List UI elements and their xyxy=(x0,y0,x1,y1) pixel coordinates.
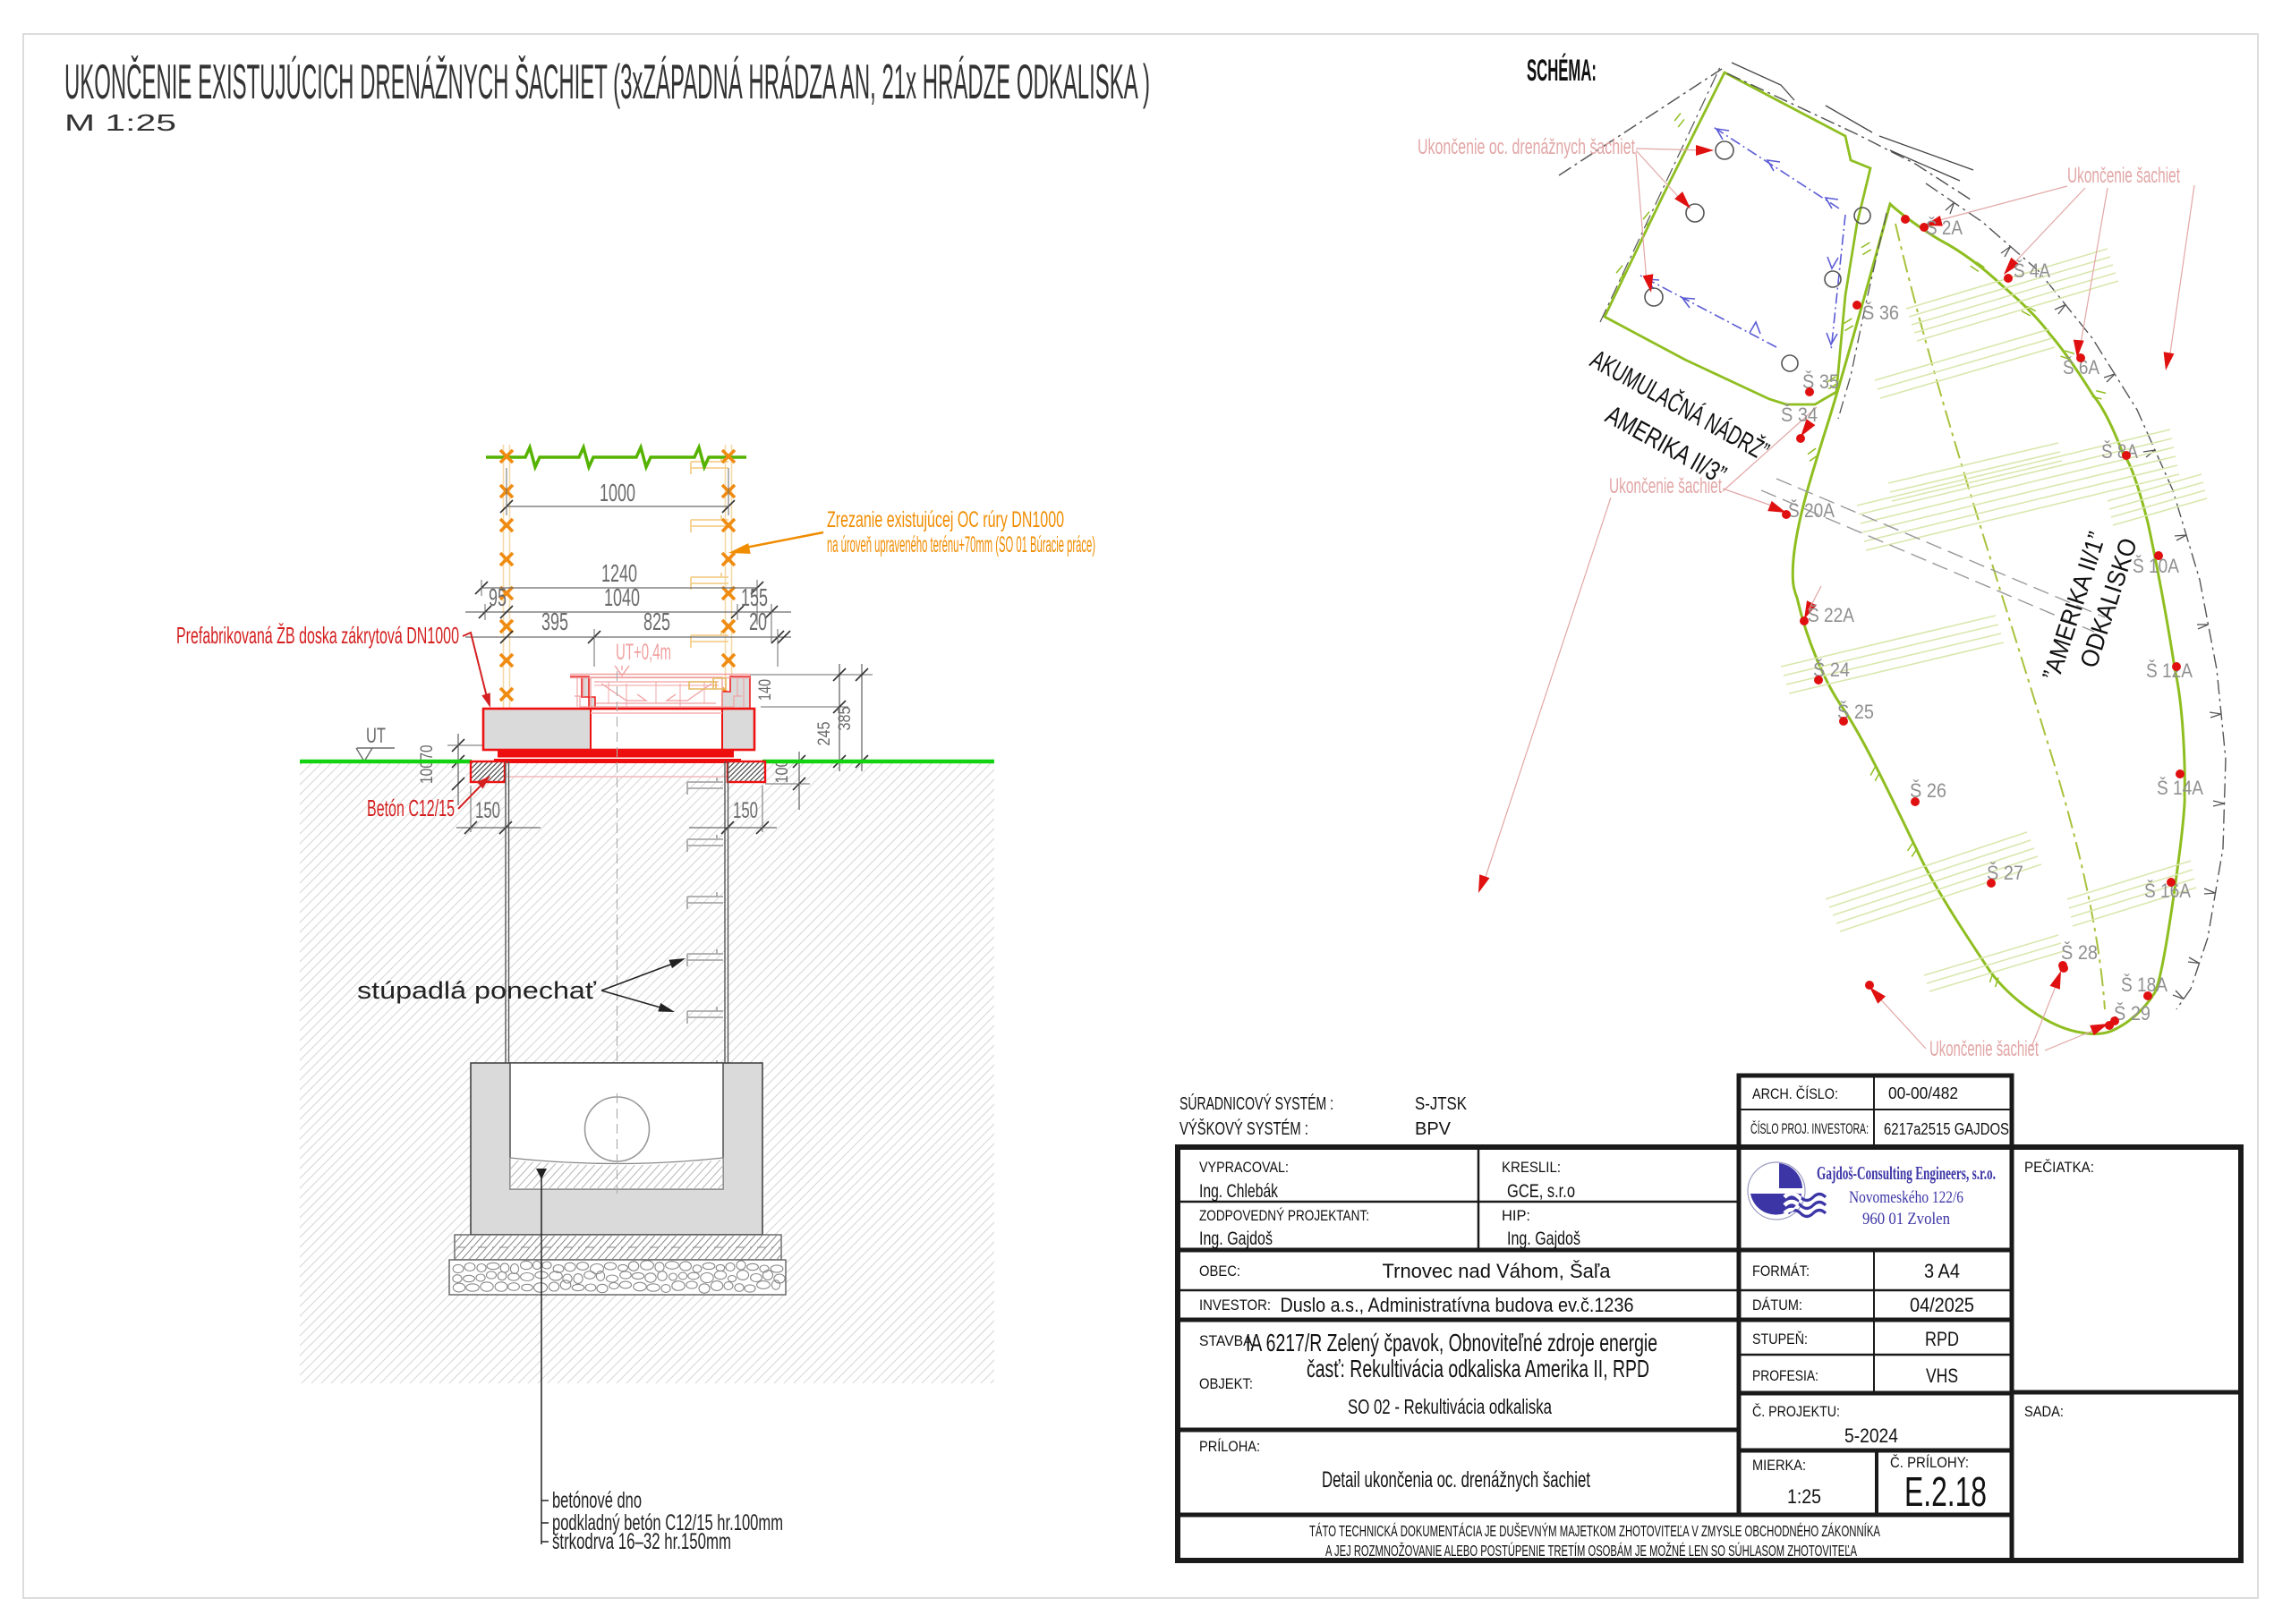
svg-text:E.2.18: E.2.18 xyxy=(1904,1468,1987,1515)
svg-text:DÁTUM:: DÁTUM: xyxy=(1752,1297,1802,1314)
svg-text:STUPEŇ:: STUPEŇ: xyxy=(1752,1331,1808,1348)
svg-text:Novomeského 122/6: Novomeského 122/6 xyxy=(1849,1188,1963,1207)
svg-text:VYPRACOVAL:: VYPRACOVAL: xyxy=(1199,1159,1289,1176)
svg-text:BPV: BPV xyxy=(1415,1119,1452,1139)
svg-text:Trnovec nad Váhom, Šaľa: Trnovec nad Váhom, Šaľa xyxy=(1383,1260,1612,1282)
svg-text:385: 385 xyxy=(836,707,855,731)
svg-text:Š 8A: Š 8A xyxy=(2101,440,2138,463)
svg-text:Š 28: Š 28 xyxy=(2061,941,2098,964)
svg-text:VHS: VHS xyxy=(1926,1365,1958,1387)
svg-text:HIP:: HIP: xyxy=(1502,1207,1530,1224)
svg-text:3 A4: 3 A4 xyxy=(1924,1260,1960,1282)
svg-text:1040: 1040 xyxy=(604,583,640,611)
svg-text:960 01 Zvolen: 960 01 Zvolen xyxy=(1862,1210,1950,1229)
svg-text:Š 2A: Š 2A xyxy=(1926,217,1963,239)
svg-text:TÁTO TECHNICKÁ DOKUMENTÁCIA JE: TÁTO TECHNICKÁ DOKUMENTÁCIA JE DUŠEVNÝM … xyxy=(1309,1521,1880,1540)
svg-text:70: 70 xyxy=(418,745,437,761)
svg-text:245: 245 xyxy=(815,722,834,746)
svg-text:IA 6217/R Zelený čpavok, Obnov: IA 6217/R Zelený čpavok, Obnoviteľné zdr… xyxy=(1246,1329,1657,1356)
svg-text:Betón C12/15: Betón C12/15 xyxy=(367,795,455,821)
svg-text:Š 22A: Š 22A xyxy=(1808,604,1854,626)
svg-text:PROFESIA:: PROFESIA: xyxy=(1752,1367,1818,1384)
svg-text:Detail ukončenia oc. drenážnyc: Detail ukončenia oc. drenážnych šachiet xyxy=(1322,1467,1590,1492)
svg-text:Š 18A: Š 18A xyxy=(2121,974,2168,996)
svg-text:395: 395 xyxy=(541,608,568,635)
svg-text:PRÍLOHA:: PRÍLOHA: xyxy=(1199,1438,1260,1455)
svg-text:Š 29: Š 29 xyxy=(2114,1002,2150,1025)
svg-text:GCE, s.r.o: GCE, s.r.o xyxy=(1507,1181,1575,1202)
svg-text:Š 14A: Š 14A xyxy=(2157,777,2203,799)
svg-text:95: 95 xyxy=(489,583,507,611)
svg-text:Ukončenie šachiet: Ukončenie šachiet xyxy=(2067,164,2180,188)
svg-text:00-00/482: 00-00/482 xyxy=(1888,1084,1958,1102)
svg-text:FORMÁT:: FORMÁT: xyxy=(1752,1263,1810,1280)
svg-text:Ing. Gajdoš: Ing. Gajdoš xyxy=(1199,1229,1273,1249)
svg-text:SO 02 - Rekultivácia odkaliska: SO 02 - Rekultivácia odkaliska xyxy=(1348,1395,1552,1418)
svg-text:štrkodrva 16–32 hr.150mm: štrkodrva 16–32 hr.150mm xyxy=(552,1529,731,1554)
svg-text:MIERKA:: MIERKA: xyxy=(1752,1457,1806,1474)
svg-text:INVESTOR:: INVESTOR: xyxy=(1199,1297,1271,1314)
svg-text:6217a2515 GAJDOS: 6217a2515 GAJDOS xyxy=(1884,1120,2009,1138)
svg-text:A JEJ ROZMNOŽOVANIE ALEBO POST: A JEJ ROZMNOŽOVANIE ALEBO POSTÚPENIE TRE… xyxy=(1325,1541,1857,1560)
svg-text:PEČIATKA:: PEČIATKA: xyxy=(2024,1159,2094,1176)
svg-text:Ing. Gajdoš: Ing. Gajdoš xyxy=(1507,1229,1580,1249)
svg-text:na úroveň upraveného terénu+70: na úroveň upraveného terénu+70mm (SO 01 … xyxy=(827,532,1095,557)
svg-text:5-2024: 5-2024 xyxy=(1844,1424,1898,1447)
svg-text:stúpadlá ponechať: stúpadlá ponechať xyxy=(357,977,597,1004)
svg-text:100: 100 xyxy=(418,761,437,784)
svg-text:M 1:25: M 1:25 xyxy=(64,109,176,136)
svg-text:SADA:: SADA: xyxy=(2024,1403,2064,1420)
svg-text:Š 12A: Š 12A xyxy=(2146,659,2193,682)
svg-text:Ing. Chlebák: Ing. Chlebák xyxy=(1199,1181,1278,1202)
svg-text:S-JTSK: S-JTSK xyxy=(1415,1094,1468,1114)
svg-text:Č. PROJEKTU:: Č. PROJEKTU: xyxy=(1752,1403,1840,1420)
svg-text:OBJEKT:: OBJEKT: xyxy=(1199,1375,1253,1392)
svg-text:UT+0,4m: UT+0,4m xyxy=(616,640,671,665)
svg-text:časť: Rekultivácia odkaliska: časť: Rekultivácia odkaliska Amerika II,… xyxy=(1307,1355,1649,1382)
svg-text:SCHÉMA:: SCHÉMA: xyxy=(1527,54,1597,88)
svg-text:ARCH. ČÍSLO:: ARCH. ČÍSLO: xyxy=(1752,1085,1838,1102)
svg-text:140: 140 xyxy=(756,679,775,701)
svg-text:Prefabrikovaná ŽB doska zákryt: Prefabrikovaná ŽB doska zákrytová DN1000 xyxy=(176,622,459,649)
svg-text:betónové dno: betónové dno xyxy=(552,1488,642,1513)
svg-text:Duslo a.s., Administratívna bu: Duslo a.s., Administratívna budova ev.č.… xyxy=(1281,1294,1634,1316)
svg-text:Zrezanie existujúcej OC rúry D: Zrezanie existujúcej OC rúry DN1000 xyxy=(827,507,1064,532)
svg-text:ZODPOVEDNÝ PROJEKTANT:: ZODPOVEDNÝ PROJEKTANT: xyxy=(1199,1207,1369,1224)
svg-text:150: 150 xyxy=(475,798,500,823)
svg-text:825: 825 xyxy=(643,608,670,635)
svg-text:VÝŠKOVÝ SYSTÉM :: VÝŠKOVÝ SYSTÉM : xyxy=(1180,1118,1308,1139)
svg-text:Ukončenie šachiet: Ukončenie šachiet xyxy=(1929,1037,2039,1061)
svg-text:04/2025: 04/2025 xyxy=(1910,1294,1974,1316)
svg-text:SÚRADNICOVÝ SYSTÉM :: SÚRADNICOVÝ SYSTÉM : xyxy=(1180,1093,1333,1114)
svg-text:Š 20A: Š 20A xyxy=(1788,499,1835,522)
svg-text:1:25: 1:25 xyxy=(1787,1485,1821,1508)
svg-text:UT: UT xyxy=(366,724,386,748)
svg-text:1000: 1000 xyxy=(600,479,635,506)
svg-text:Ukončenie oc. drenážnych šachi: Ukončenie oc. drenážnych šachiet xyxy=(1418,135,1635,159)
svg-text:KRESLIL:: KRESLIL: xyxy=(1502,1159,1561,1176)
svg-text:20: 20 xyxy=(749,608,767,635)
svg-text:ČÍSLO PROJ. INVESTORA:: ČÍSLO PROJ. INVESTORA: xyxy=(1750,1120,1869,1137)
svg-text:Š 36: Š 36 xyxy=(1862,302,1899,324)
svg-text:Gajdoš-Consulting Engineers, s: Gajdoš-Consulting Engineers, s.r.o. xyxy=(1817,1162,1996,1184)
svg-text:150: 150 xyxy=(733,798,758,823)
svg-text:UKONČENIE EXISTUJÚCICH DRENÁŽN: UKONČENIE EXISTUJÚCICH DRENÁŽNYCH ŠACHIE… xyxy=(64,54,1150,109)
svg-text:Š 4A: Š 4A xyxy=(2014,259,2050,282)
svg-text:OBEC:: OBEC: xyxy=(1199,1263,1240,1280)
svg-text:RPD: RPD xyxy=(1925,1328,1959,1350)
svg-text:Š 34: Š 34 xyxy=(1781,404,1818,426)
